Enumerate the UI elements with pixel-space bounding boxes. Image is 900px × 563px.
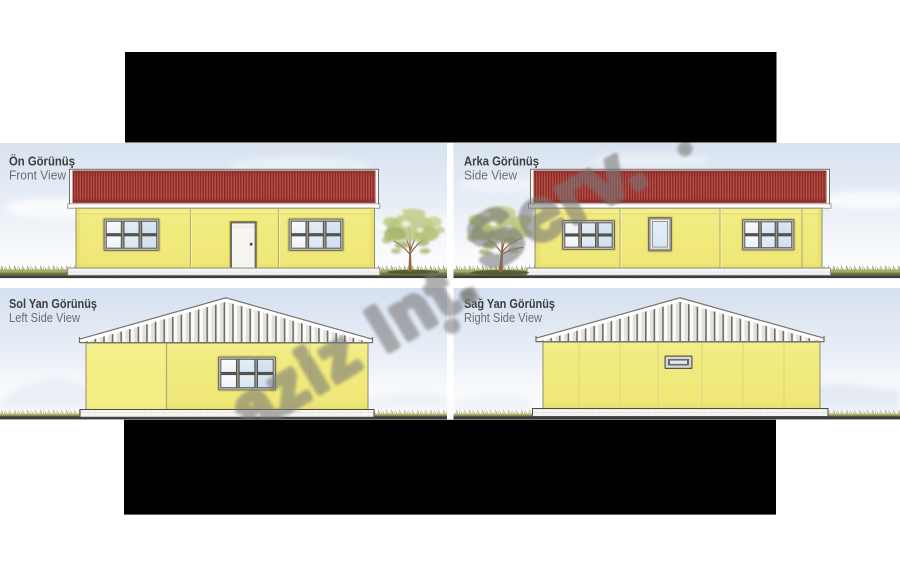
svg-text:Side View: Side View bbox=[464, 168, 518, 183]
svg-text:Ön Görünüş: Ön Görünüş bbox=[9, 154, 75, 169]
svg-text:Arka Görünüş: Arka Görünüş bbox=[464, 154, 539, 169]
svg-text:Left Side View: Left Side View bbox=[9, 310, 81, 325]
svg-text:Front View: Front View bbox=[9, 168, 67, 183]
svg-text:Sol Yan Görünüş: Sol Yan Görünüş bbox=[9, 296, 97, 311]
